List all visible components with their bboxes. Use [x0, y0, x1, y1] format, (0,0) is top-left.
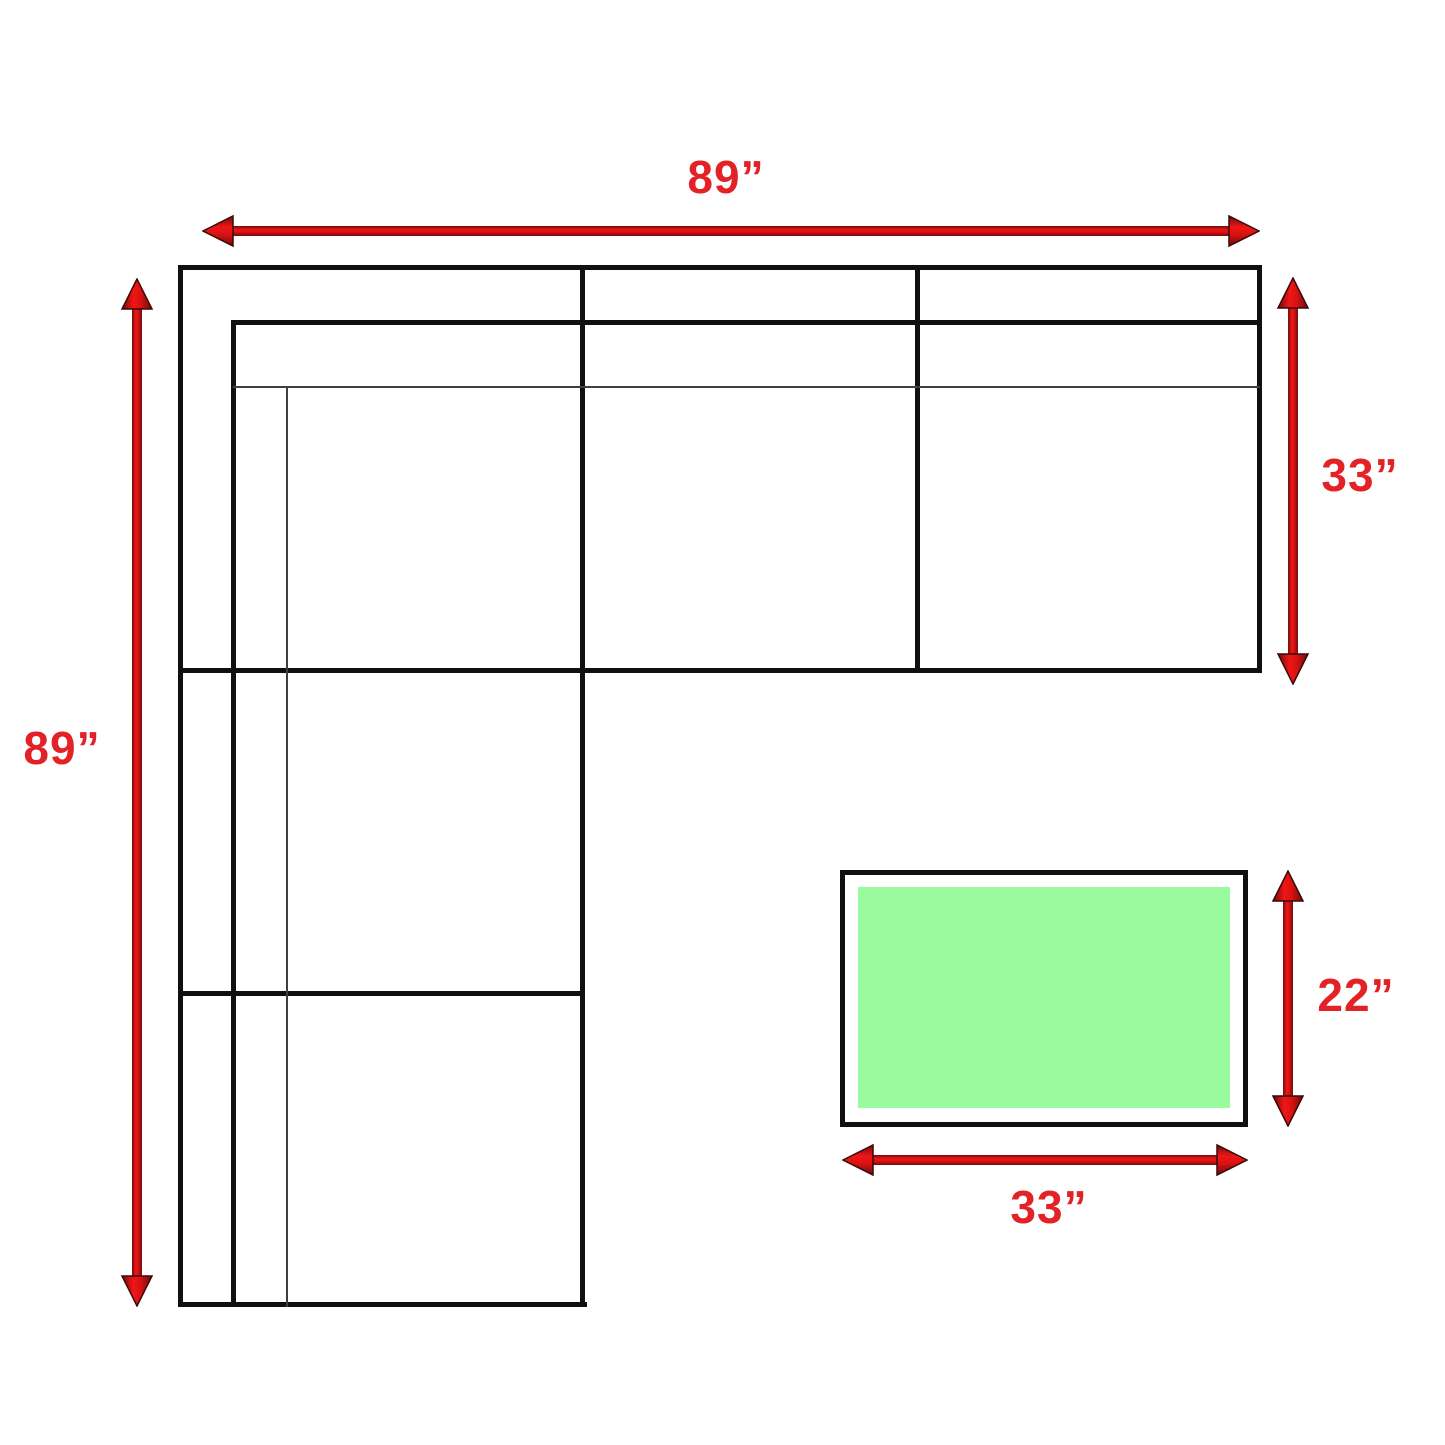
sofa-seat-front-divider: [178, 668, 1262, 673]
sofa-depth-dimension-label: 89”: [23, 725, 100, 771]
sectional-dimension-diagram: 89” 89” 33” 22” 33”: [0, 0, 1445, 1445]
ottoman-width-dimension-arrow-icon: [842, 1142, 1248, 1178]
sofa-width-dimension-arrow-icon: [202, 213, 1260, 249]
ottoman-depth-dimension-label: 22”: [1317, 972, 1394, 1018]
sofa-depth-dimension-arrow-icon: [119, 278, 155, 1307]
ottoman-depth-dimension-arrow-icon: [1270, 870, 1306, 1127]
sofa-backrest-line-horizontal: [231, 320, 1262, 325]
sofa-outline-top-edge: [178, 265, 1262, 270]
sofa-top-row-seat-divider: [915, 265, 920, 673]
ottoman-green-cushion: [858, 887, 1230, 1108]
chaise-depth-dimension-arrow-icon: [1275, 277, 1311, 685]
chaise-depth-dimension-label: 33”: [1321, 452, 1398, 498]
sofa-cushion-line-vertical: [286, 386, 288, 1307]
sofa-outline-left-edge: [178, 265, 183, 1307]
sofa-left-column-seat-divider: [178, 991, 585, 996]
ottoman-width-dimension-label: 33”: [1010, 1184, 1087, 1230]
sofa-backrest-line-vertical: [231, 320, 236, 1307]
sofa-cushion-line-horizontal: [233, 386, 1260, 388]
sofa-outline-right-edge: [1257, 265, 1262, 672]
sofa-left-column-right-edge: [580, 265, 585, 1307]
sofa-width-dimension-label: 89”: [687, 154, 764, 200]
sofa-outline-bottom-edge: [178, 1302, 587, 1307]
